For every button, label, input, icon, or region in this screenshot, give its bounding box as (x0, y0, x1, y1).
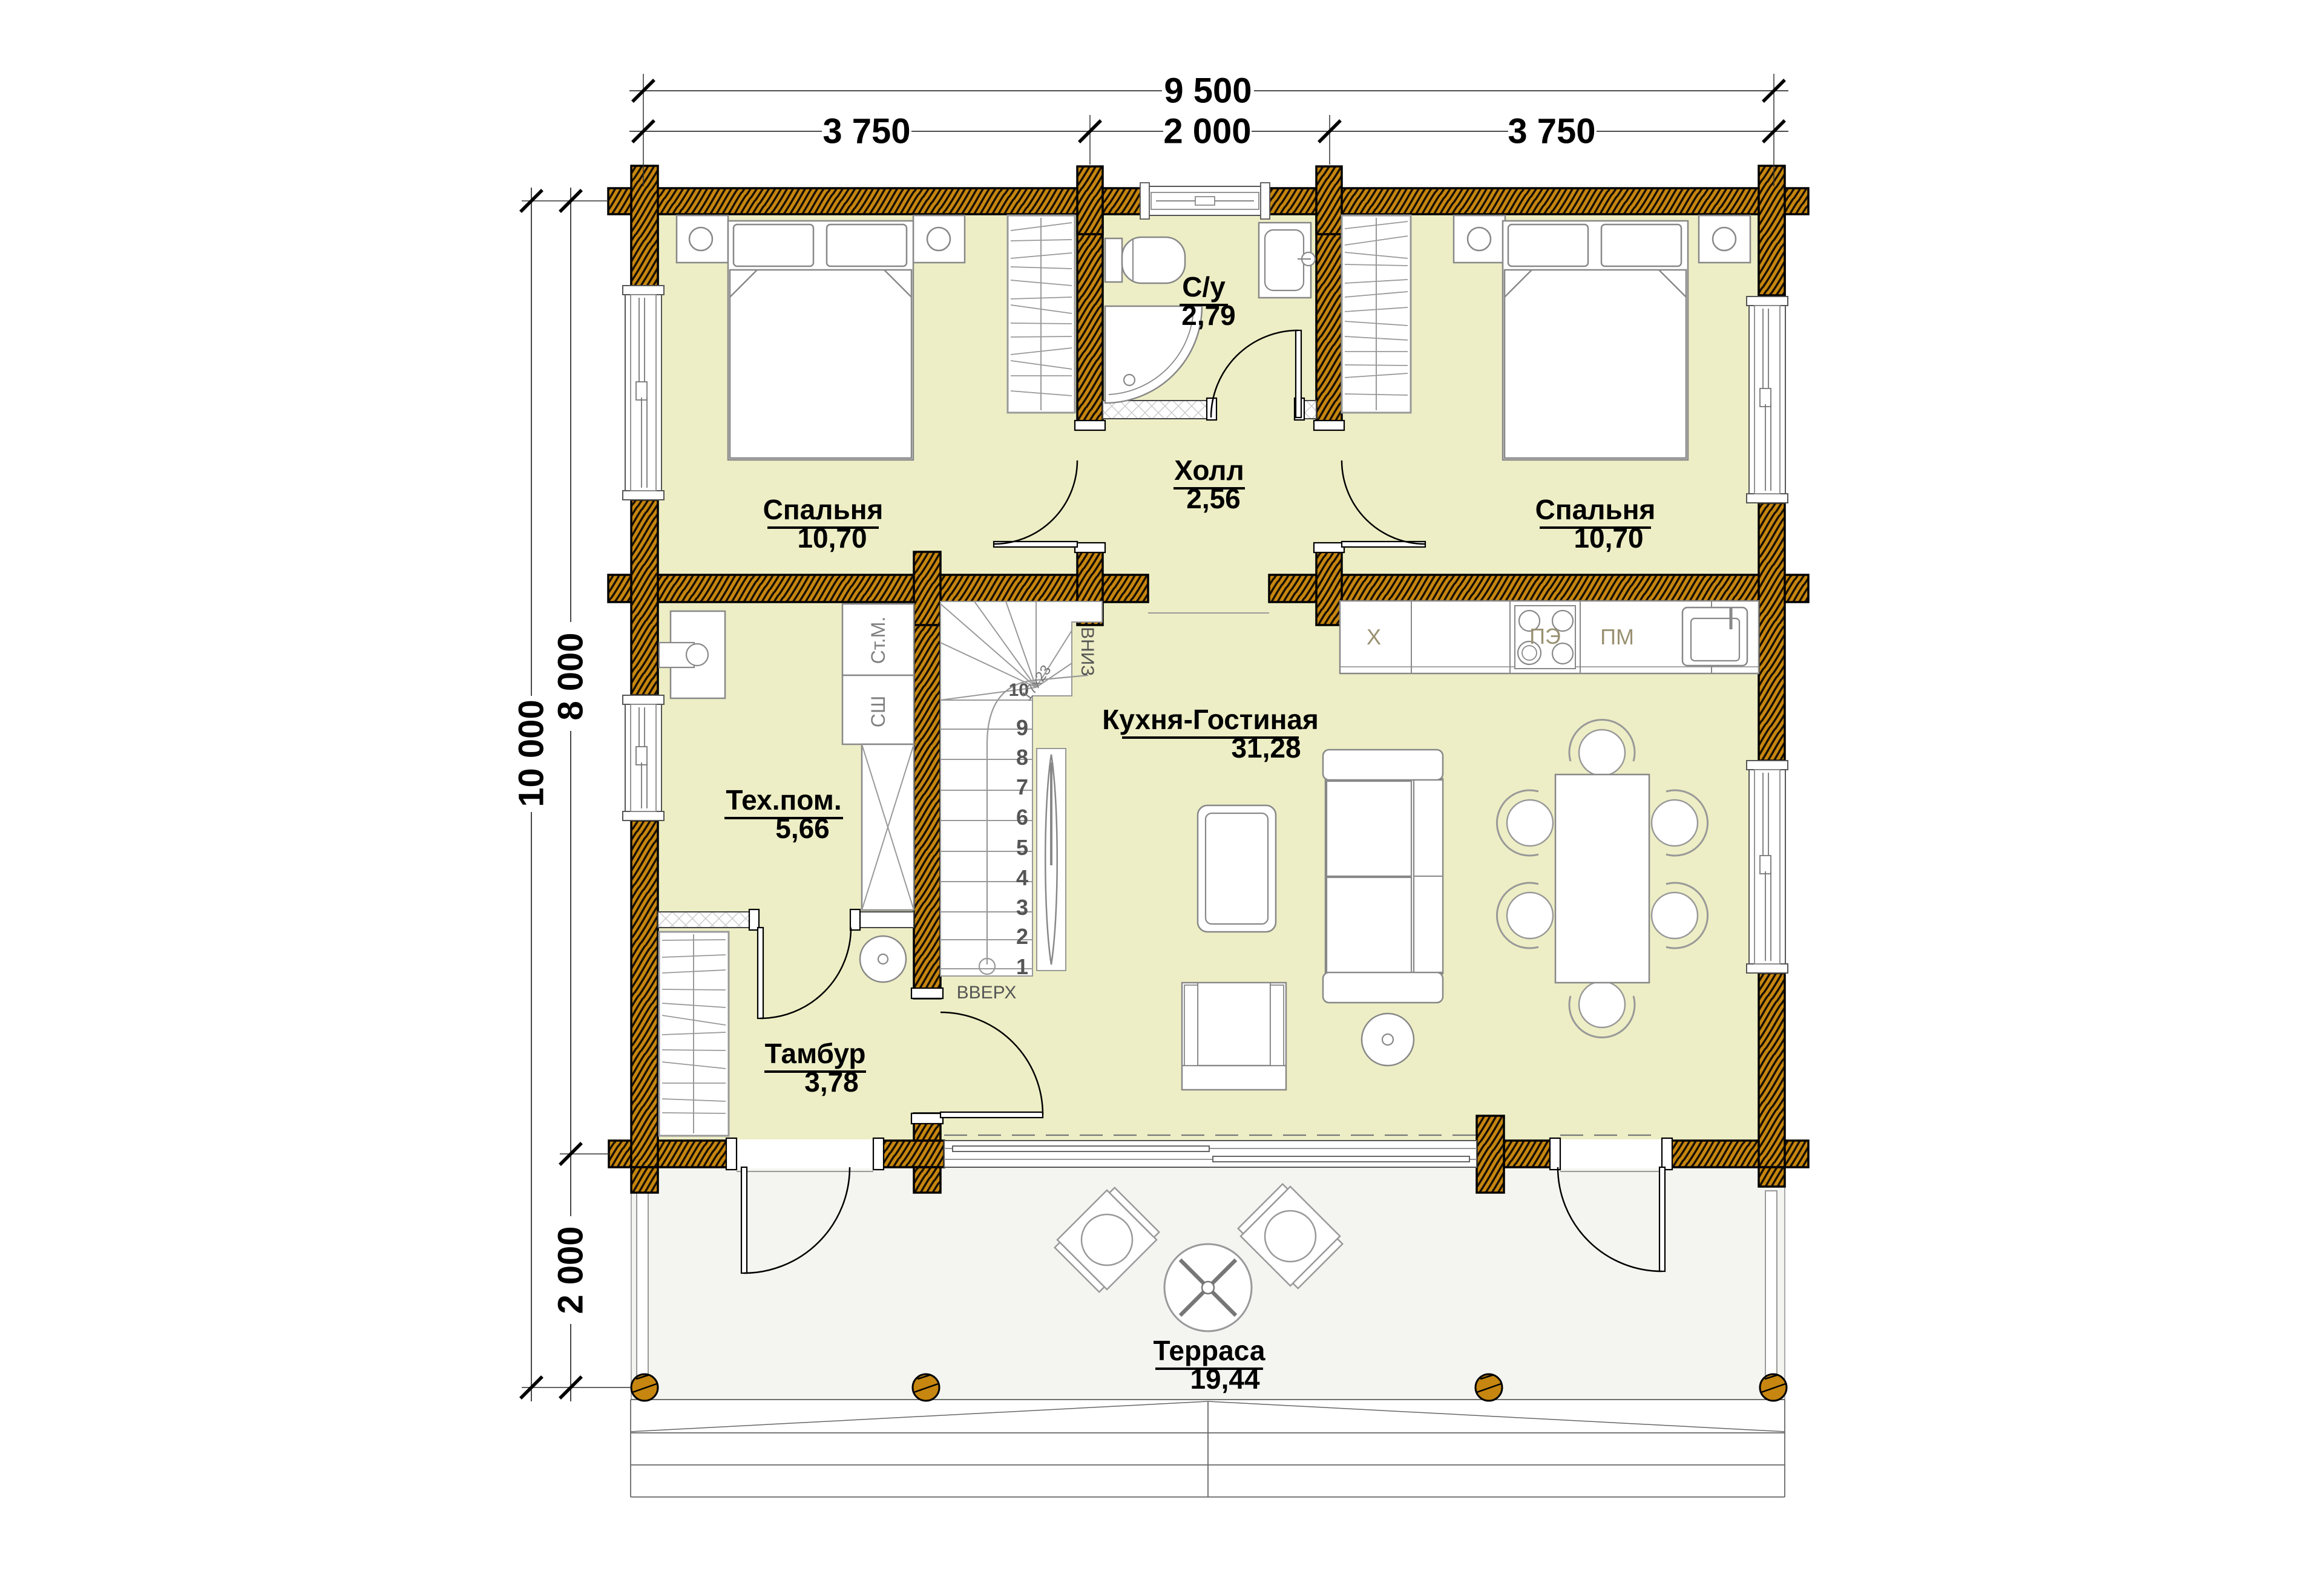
svg-text:1: 1 (1016, 954, 1028, 979)
svg-text:5,66: 5,66 (775, 813, 830, 844)
svg-text:2 000: 2 000 (1163, 112, 1251, 151)
svg-text:9: 9 (1016, 715, 1028, 740)
svg-text:8 000: 8 000 (551, 632, 591, 720)
svg-text:Ст.М.: Ст.М. (867, 617, 889, 664)
svg-text:Тамбур: Тамбур (765, 1038, 866, 1069)
svg-text:9 500: 9 500 (1164, 71, 1252, 111)
svg-text:8: 8 (1016, 745, 1028, 770)
svg-text:2: 2 (1016, 924, 1028, 949)
svg-text:Спальня: Спальня (1535, 494, 1656, 525)
svg-text:2 000: 2 000 (551, 1226, 591, 1314)
svg-text:Тех.пом.: Тех.пом. (726, 784, 841, 816)
svg-text:7: 7 (1016, 775, 1028, 799)
svg-text:ВНИЗ: ВНИЗ (1077, 627, 1097, 676)
svg-text:10,70: 10,70 (797, 522, 867, 554)
svg-text:5: 5 (1016, 835, 1028, 860)
svg-text:19,44: 19,44 (1190, 1363, 1260, 1395)
svg-text:10,70: 10,70 (1574, 522, 1643, 554)
svg-text:ПМ: ПМ (1600, 624, 1634, 649)
svg-text:2,79: 2,79 (1181, 300, 1236, 331)
svg-text:Кухня-Гостиная: Кухня-Гостиная (1102, 704, 1319, 735)
svg-text:3 750: 3 750 (822, 112, 910, 151)
svg-text:6: 6 (1016, 805, 1028, 830)
svg-text:Терраса: Терраса (1154, 1335, 1265, 1366)
svg-text:С/у: С/у (1182, 271, 1226, 303)
svg-text:ВВЕРХ: ВВЕРХ (957, 983, 1017, 1003)
svg-text:3: 3 (1016, 895, 1028, 920)
svg-text:31,28: 31,28 (1231, 732, 1301, 764)
svg-text:10 000: 10 000 (512, 699, 551, 807)
svg-text:Х: Х (1367, 624, 1381, 649)
svg-text:2,56: 2,56 (1186, 483, 1241, 514)
svg-text:3 750: 3 750 (1508, 112, 1595, 151)
svg-text:ПЭ: ПЭ (1529, 624, 1561, 649)
svg-text:СШ: СШ (867, 696, 889, 727)
svg-text:Спальня: Спальня (763, 494, 884, 525)
svg-text:3,78: 3,78 (804, 1066, 859, 1098)
svg-text:Холл: Холл (1174, 454, 1244, 486)
svg-text:4: 4 (1016, 865, 1028, 890)
